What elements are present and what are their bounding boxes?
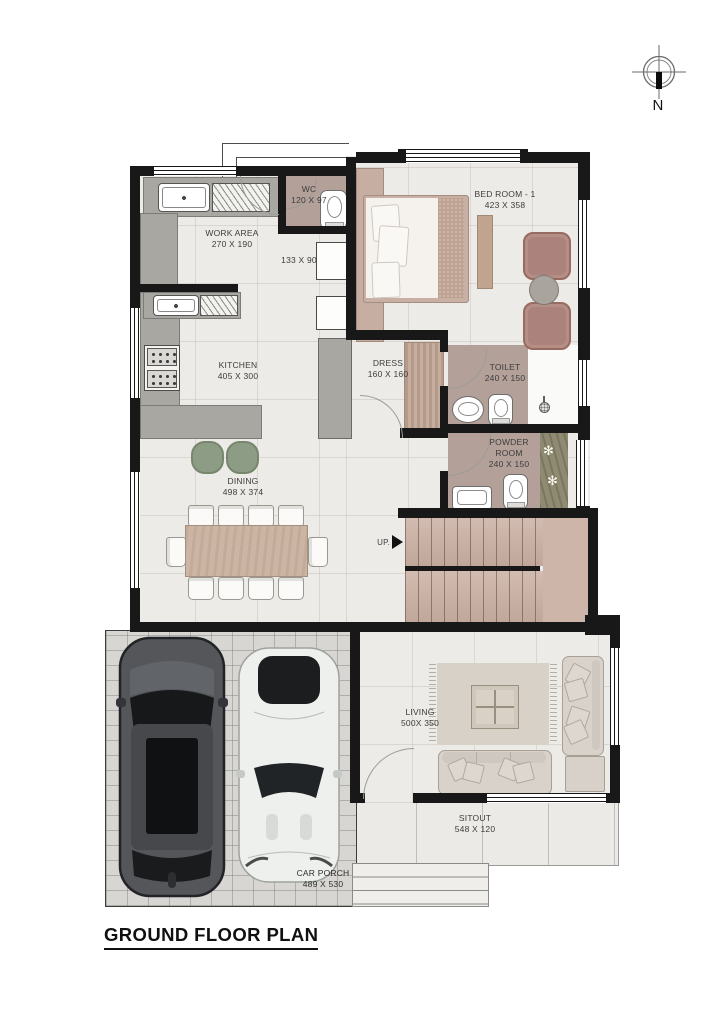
wall: [398, 149, 406, 163]
room-name: KITCHEN: [206, 360, 270, 371]
toilet-icon: [503, 474, 528, 511]
window: [154, 166, 236, 176]
room-name: TOILET: [473, 362, 537, 373]
page-title: GROUND FLOOR PLAN: [104, 924, 318, 950]
wall: [588, 508, 598, 632]
room-name: CAR PORCH: [283, 868, 363, 879]
room-name: WC: [281, 184, 337, 195]
dining-chair: [248, 577, 274, 600]
wall: [578, 406, 590, 440]
wall: [130, 622, 598, 632]
sports-car: [236, 646, 342, 884]
refrigerator: [318, 338, 352, 439]
wall: [398, 508, 598, 518]
room-dims: 240 X 150: [479, 459, 539, 470]
wall: [130, 398, 140, 472]
window: [130, 308, 140, 398]
room-label-living: LIVING 500X 350: [388, 707, 452, 729]
sink-icon: [153, 295, 199, 316]
burner-icon: [147, 348, 177, 366]
entry-steps: [352, 863, 489, 907]
dress-wardrobe: [404, 342, 444, 432]
pouf: [226, 441, 259, 474]
room-dims: 270 X 190: [200, 239, 264, 250]
room-label-passage: 133 X 90: [271, 255, 327, 266]
room-label-toilet: TOILET 240 X 150: [473, 362, 537, 384]
up-label: UP.: [364, 538, 390, 549]
wall: [278, 226, 348, 234]
stairs-up-arrow-icon: [392, 535, 403, 549]
work-area-side-counter: [140, 213, 178, 286]
floor-shower: [528, 345, 578, 425]
dining-table: [185, 525, 308, 577]
rug-fringe: [429, 664, 436, 744]
washbasin-icon: [452, 486, 492, 510]
room-label-sitout: SITOUT 548 X 120: [443, 813, 507, 835]
sofa-backrest: [592, 660, 600, 750]
shower-icon: [539, 402, 550, 413]
wall: [130, 166, 140, 308]
room-name: SITOUT: [443, 813, 507, 824]
staircase-landing: [543, 518, 588, 622]
wall: [346, 330, 448, 340]
wall: [440, 340, 448, 352]
compass-north-label: N: [646, 96, 670, 116]
burner-icon: [147, 370, 177, 388]
wall: [400, 428, 448, 438]
floor-plan-canvas: ✻ ✻: [0, 0, 724, 1024]
round-side-table: [529, 275, 559, 305]
window: [487, 793, 606, 803]
window: [130, 472, 140, 588]
room-name: BED ROOM - 1: [455, 189, 555, 200]
wall: [413, 793, 487, 803]
wall: [520, 149, 528, 163]
wall: [610, 632, 620, 648]
staircase-lower-flight: [405, 571, 543, 622]
room-dims: 133 X 90: [271, 255, 327, 266]
wall: [578, 152, 590, 200]
window: [578, 360, 590, 406]
window: [576, 440, 588, 506]
room-dims: 423 X 358: [455, 200, 555, 211]
washbasin-icon: [452, 396, 484, 423]
room-label-bedroom1: BED ROOM - 1 423 X 358: [455, 189, 555, 211]
room-label-powder-room: POWDER ROOM 240 X 150: [479, 437, 539, 471]
room-name: DRESS: [356, 358, 420, 369]
room-dims: 489 X 530: [283, 879, 363, 890]
room-name: POWDER ROOM: [479, 437, 539, 459]
bed-bench: [477, 215, 493, 289]
plant-icon: ✻: [547, 474, 558, 487]
wall: [448, 424, 590, 433]
room-name: LIVING: [388, 707, 452, 718]
bed-blanket: [438, 198, 464, 298]
coffee-table: [471, 685, 519, 729]
dining-chair: [166, 537, 186, 567]
staircase-handrail: [405, 566, 540, 571]
room-label-wc: WC 120 X 97: [281, 184, 337, 206]
wall: [284, 166, 348, 176]
room-name: WORK AREA: [200, 228, 264, 239]
kitchen-bottom-counter: [140, 405, 262, 439]
window: [610, 648, 620, 745]
wall: [236, 166, 284, 176]
armchair: [523, 232, 571, 280]
room-name: DINING: [211, 476, 275, 487]
room-label-car-porch: CAR PORCH 489 X 530: [283, 868, 363, 890]
room-dims: 240 X 150: [473, 373, 537, 384]
suv-car: [116, 636, 228, 898]
pillow: [371, 262, 400, 299]
room-dims: 500X 350: [388, 718, 452, 729]
plant-icon: ✻: [543, 444, 554, 457]
wall: [606, 793, 620, 803]
room-dims: 498 X 374: [211, 487, 275, 498]
utility-cabinet: [316, 296, 350, 330]
room-dims: 548 X 120: [443, 824, 507, 835]
room-label-work-area: WORK AREA 270 X 190: [200, 228, 264, 250]
dining-chair: [308, 537, 328, 567]
window: [578, 200, 590, 288]
stairs-up-label: UP.: [364, 538, 390, 549]
louvre-window: [406, 149, 520, 163]
wall: [346, 157, 356, 340]
room-dims: 405 X 300: [206, 371, 270, 382]
side-table: [565, 756, 605, 792]
rug-fringe: [550, 664, 557, 744]
drainboard-icon: [200, 295, 238, 316]
room-label-dining: DINING 498 X 374: [211, 476, 275, 498]
sink-icon: [158, 183, 210, 212]
wall: [578, 288, 590, 360]
wall: [140, 284, 238, 292]
room-dims: 120 X 97: [281, 195, 337, 206]
pouf: [191, 441, 224, 474]
wall: [440, 471, 448, 510]
dining-chair: [218, 577, 244, 600]
room-label-dress: DRESS 160 X 160: [356, 358, 420, 380]
wall: [350, 632, 360, 803]
toilet-icon: [488, 394, 513, 427]
dining-chair: [278, 577, 304, 600]
pillow: [377, 225, 410, 267]
armchair: [523, 302, 571, 350]
dining-chair: [188, 577, 214, 600]
room-label-kitchen: KITCHEN 405 X 300: [206, 360, 270, 382]
room-dims: 160 X 160: [356, 369, 420, 380]
staircase-upper-flight: [405, 518, 543, 566]
